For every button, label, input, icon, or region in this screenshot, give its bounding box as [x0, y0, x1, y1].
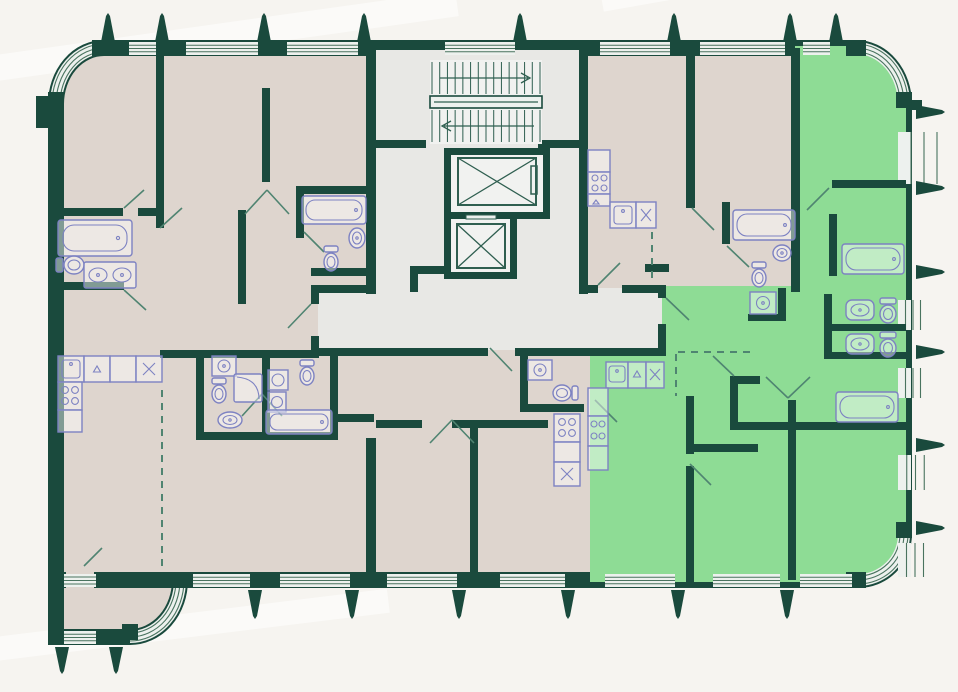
corner-shower-icon [234, 374, 262, 402]
staircase [430, 60, 542, 144]
axis-spike [916, 438, 945, 452]
axis-spike [916, 105, 945, 119]
axis-spike [780, 590, 794, 619]
axis-spike [109, 647, 123, 674]
axis-spike [671, 590, 685, 619]
apartment-left[interactable] [56, 56, 306, 356]
apartment-middle-bottom[interactable] [376, 356, 576, 572]
axis-spike [829, 13, 843, 42]
sink-icon [218, 412, 242, 428]
axis-spike [155, 13, 169, 42]
axis-spike [257, 13, 271, 42]
axis-spike [345, 590, 359, 619]
axis-spike [916, 265, 945, 279]
axis-spike [783, 13, 797, 42]
axis-spike [916, 181, 945, 195]
protrusion-walls [48, 572, 182, 588]
axis-spike [916, 521, 945, 535]
axis-spike [101, 13, 115, 42]
apartment-middle-top[interactable] [270, 56, 366, 281]
toilet-icon [212, 378, 226, 403]
washbasin-icon [268, 392, 286, 412]
axis-spike [55, 647, 69, 674]
window-segment [898, 132, 911, 184]
axis-spike [248, 590, 262, 619]
axis-spike [561, 590, 575, 619]
elevator-2 [451, 215, 510, 272]
elevator-1 [451, 155, 543, 212]
axis-spike [916, 345, 945, 359]
floor-plan [0, 0, 958, 692]
bathtub-icon [266, 410, 332, 434]
axis-spike [357, 13, 371, 42]
axis-spike [452, 590, 466, 619]
apartment-right-green[interactable] [662, 290, 902, 578]
toilet-icon [300, 360, 314, 385]
apartment-top-right[interactable] [595, 56, 785, 280]
washbasin-icon [268, 370, 288, 390]
axis-spike [667, 13, 681, 42]
axis-spike [513, 13, 527, 42]
washbasin-icon [212, 356, 236, 376]
bathtub-icon [842, 244, 904, 274]
